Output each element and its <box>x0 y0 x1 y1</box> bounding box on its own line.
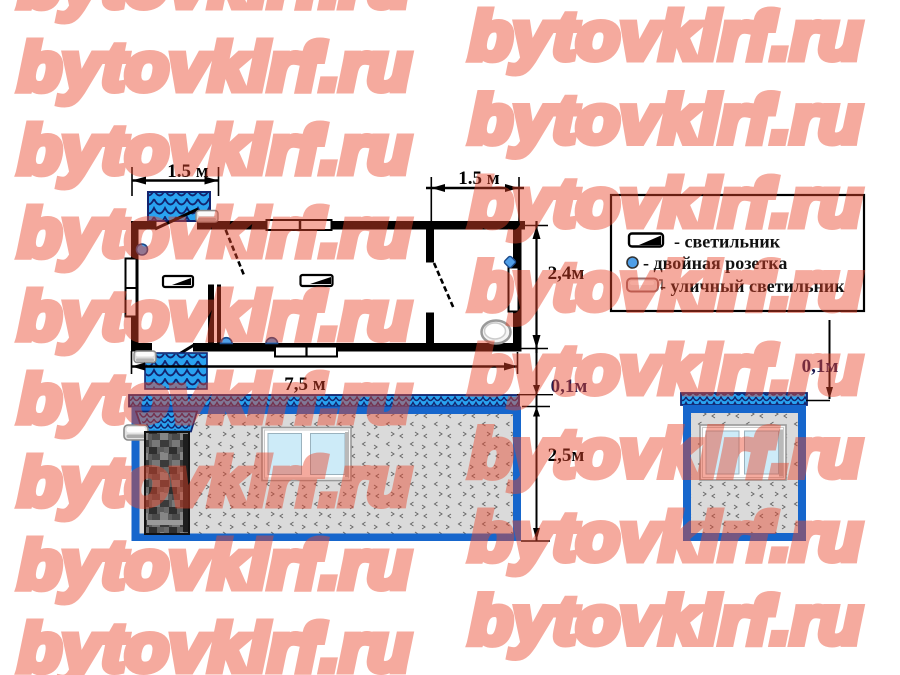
svg-text:bytovkirf.ru: bytovkirf.ru <box>469 332 862 408</box>
svg-text:bytovkirf.ru: bytovkirf.ru <box>469 583 862 659</box>
svg-text:bytovkirf.ru: bytovkirf.ru <box>469 0 862 74</box>
svg-text:bytovkirf.ru: bytovkirf.ru <box>469 249 862 325</box>
svg-text:bytovkirf.ru: bytovkirf.ru <box>18 444 411 520</box>
svg-text:bytovkirf.ru: bytovkirf.ru <box>469 165 862 241</box>
svg-text:bytovkirf.ru: bytovkirf.ru <box>18 0 411 22</box>
svg-text:bytovkirf.ru: bytovkirf.ru <box>18 610 411 675</box>
svg-text:bytovkirf.ru: bytovkirf.ru <box>18 195 411 271</box>
svg-text:bytovkirf.ru: bytovkirf.ru <box>469 82 862 158</box>
svg-text:bytovkirf.ru: bytovkirf.ru <box>18 527 411 603</box>
svg-text:bytovkirf.ru: bytovkirf.ru <box>469 416 862 492</box>
svg-text:bytovkirf.ru: bytovkirf.ru <box>18 112 411 188</box>
svg-text:bytovkirf.ru: bytovkirf.ru <box>18 278 411 354</box>
svg-text:bytovkirf.ru: bytovkirf.ru <box>469 499 862 575</box>
svg-text:bytovkirf.ru: bytovkirf.ru <box>18 29 411 105</box>
svg-text:bytovkirf.ru: bytovkirf.ru <box>18 361 411 437</box>
